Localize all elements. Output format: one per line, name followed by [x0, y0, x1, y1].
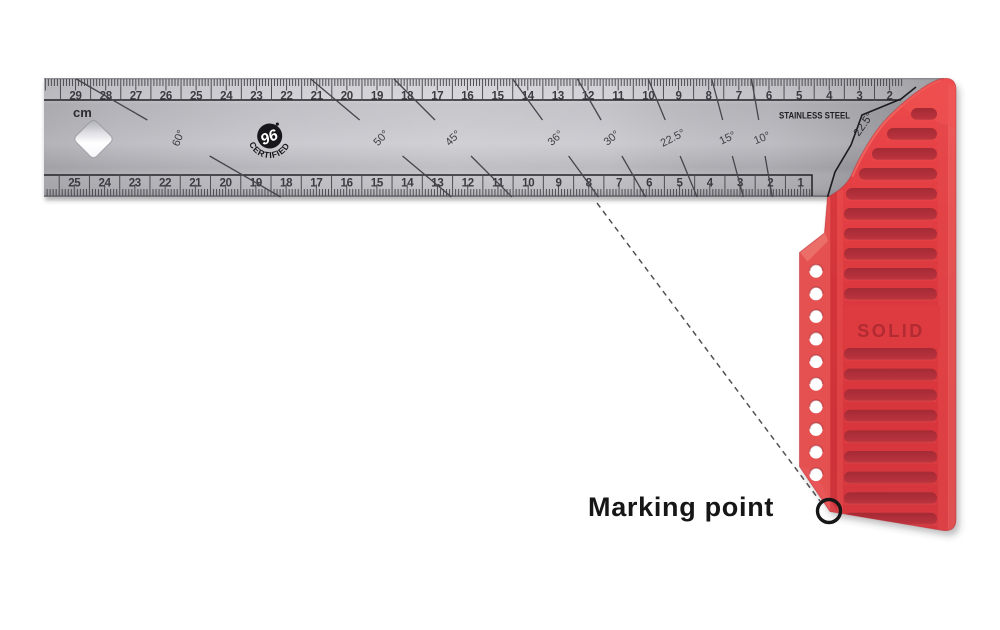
svg-text:12: 12: [462, 178, 474, 190]
svg-text:17: 17: [431, 90, 443, 102]
svg-text:20: 20: [341, 90, 353, 102]
svg-text:10: 10: [522, 178, 534, 190]
svg-text:Marking point: Marking point: [588, 492, 774, 522]
svg-text:17: 17: [310, 178, 322, 190]
svg-text:29: 29: [69, 90, 81, 102]
svg-text:27: 27: [130, 90, 142, 102]
svg-text:15: 15: [371, 178, 384, 190]
svg-text:5: 5: [676, 178, 683, 190]
svg-text:3: 3: [856, 90, 862, 102]
svg-text:2: 2: [886, 90, 892, 102]
svg-text:26: 26: [160, 90, 172, 102]
svg-text:1: 1: [797, 178, 804, 190]
svg-text:4: 4: [707, 178, 714, 190]
svg-text:24: 24: [98, 178, 111, 190]
svg-text:22: 22: [280, 90, 292, 102]
svg-text:8: 8: [706, 90, 713, 102]
svg-text:23: 23: [129, 178, 141, 190]
svg-text:4: 4: [826, 90, 833, 102]
svg-text:6: 6: [646, 178, 652, 190]
svg-text:6: 6: [766, 90, 772, 102]
svg-text:STAINLESS STEEL: STAINLESS STEEL: [779, 111, 850, 122]
svg-text:16: 16: [461, 90, 473, 102]
svg-text:25: 25: [68, 178, 81, 190]
svg-text:14: 14: [401, 178, 414, 190]
svg-text:18: 18: [280, 178, 293, 190]
svg-text:7: 7: [736, 90, 742, 102]
svg-text:cm: cm: [73, 105, 92, 120]
svg-text:7: 7: [616, 178, 622, 190]
svg-text:21: 21: [311, 90, 324, 102]
svg-text:13: 13: [431, 178, 443, 190]
svg-text:15: 15: [491, 90, 504, 102]
svg-text:10: 10: [642, 90, 654, 102]
svg-text:23: 23: [250, 90, 262, 102]
svg-text:16: 16: [340, 178, 352, 190]
svg-text:25: 25: [190, 90, 203, 102]
svg-text:24: 24: [220, 90, 233, 102]
svg-text:9: 9: [555, 178, 561, 190]
svg-text:SOLID: SOLID: [857, 321, 925, 341]
svg-text:9: 9: [675, 90, 681, 102]
svg-text:22: 22: [159, 178, 171, 190]
svg-text:20: 20: [219, 178, 231, 190]
svg-text:19: 19: [250, 178, 262, 190]
svg-text:19: 19: [371, 90, 383, 102]
svg-text:11: 11: [612, 90, 624, 102]
svg-text:5: 5: [796, 90, 803, 102]
svg-text:13: 13: [552, 90, 564, 102]
svg-text:21: 21: [189, 178, 202, 190]
